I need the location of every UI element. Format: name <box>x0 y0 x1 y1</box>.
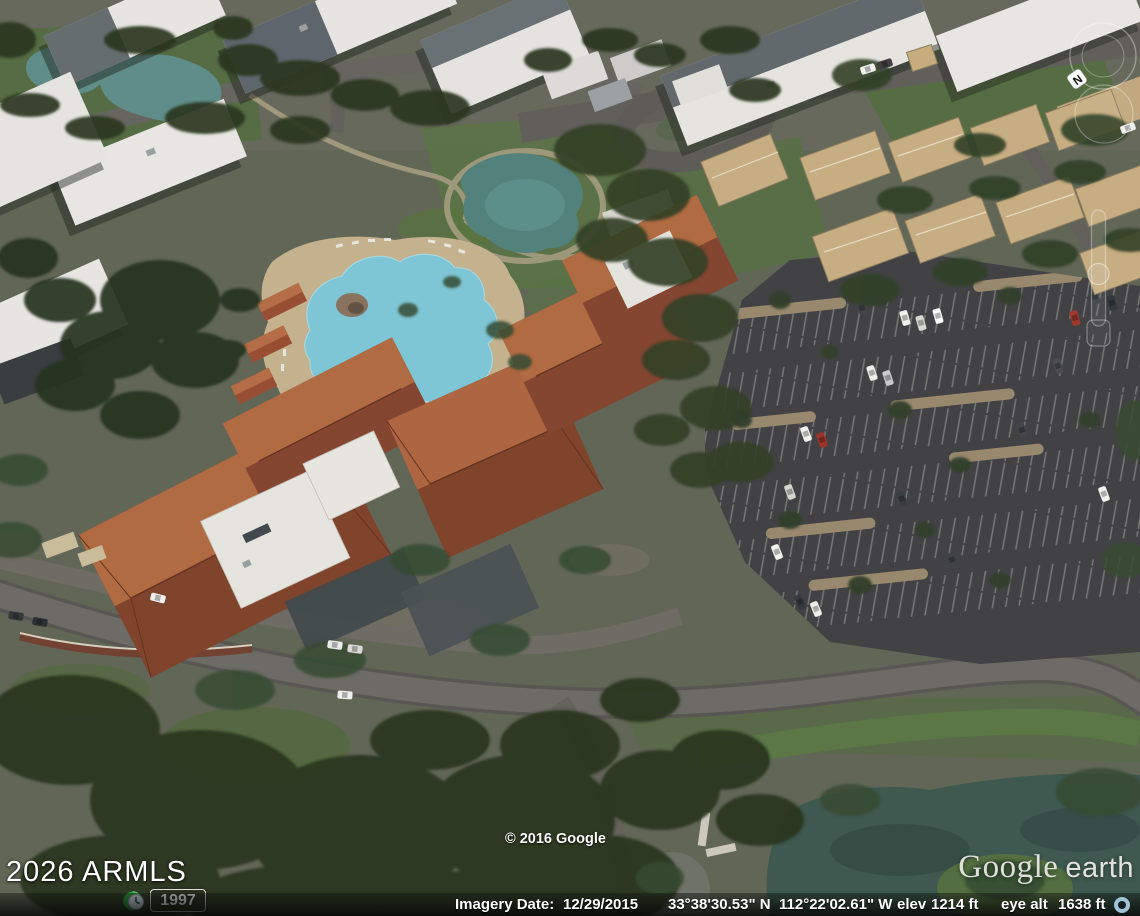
logo-google-text: Google <box>958 849 1058 886</box>
longitude-readout: 112°22'02.61" W <box>779 893 892 916</box>
streaming-progress-icon <box>1114 897 1130 913</box>
google-earth-logo: Google earth <box>958 849 1134 886</box>
mls-watermark: 2026 ARMLS <box>6 856 187 889</box>
haze-overlay <box>0 0 1140 916</box>
elevation-label: elev <box>897 893 926 916</box>
imagery-date-value: 12/29/2015 <box>563 893 638 916</box>
google-earth-viewport[interactable]: N 2026 ARMLS 1997 © 2016 Google Google e… <box>0 0 1140 916</box>
aerial-imagery[interactable]: N <box>0 0 1140 916</box>
copyright-watermark: © 2016 Google <box>505 831 606 847</box>
eye-altitude-label: eye alt <box>1001 893 1048 916</box>
zoom-slider-handle[interactable] <box>1088 264 1109 285</box>
eye-altitude-value: 1638 ft <box>1058 893 1106 916</box>
status-bar: Imagery Date: 12/29/2015 33°38'30.53" N … <box>0 893 1140 916</box>
logo-earth-text: earth <box>1065 852 1134 885</box>
elevation-value: 1214 ft <box>931 893 979 916</box>
look-joystick[interactable] <box>1075 85 1133 143</box>
latitude-readout: 33°38'30.53" N <box>668 893 771 916</box>
imagery-date-label: Imagery Date: <box>455 893 554 916</box>
